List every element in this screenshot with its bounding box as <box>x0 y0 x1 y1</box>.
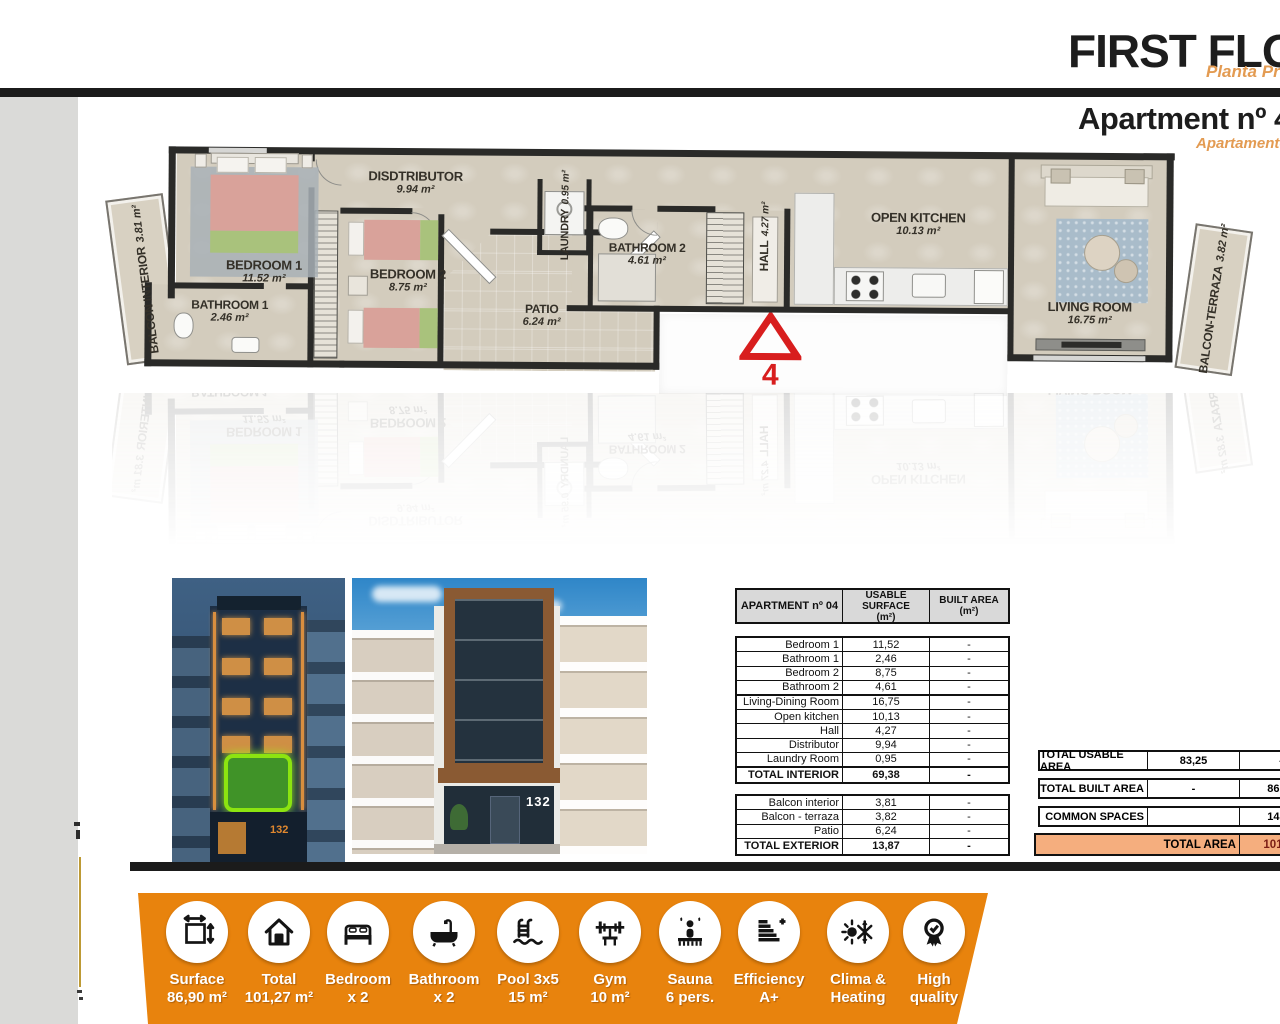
amenities-banner: Surface86,90 m² Total101,27 m² Bedroomx … <box>115 893 995 1024</box>
room-label-bathroom1: BATHROOM 12.46 m² <box>191 298 268 325</box>
table-row: Bathroom 12,46- <box>737 652 1008 666</box>
fridge <box>974 270 1004 304</box>
floor-plan: 4 <box>111 136 1263 398</box>
nightstand <box>302 154 313 168</box>
cloud <box>372 586 442 602</box>
bed-footer <box>419 308 437 348</box>
decor-mark <box>77 990 82 993</box>
window <box>1033 355 1145 361</box>
neighbor-building <box>172 636 210 862</box>
day-building-number: 132 <box>526 794 551 809</box>
lit-window <box>264 618 292 635</box>
light-strip <box>301 612 304 810</box>
pool-ladder-icon <box>497 901 559 963</box>
lit-window <box>264 658 292 675</box>
floor-plan-reflection: 4 <box>112 393 1262 561</box>
amenity-gym: Gym10 m² <box>566 901 654 1008</box>
header-divider-bar <box>0 88 1280 97</box>
room-label-open-kitchen: OPEN KITCHEN10.13 m² <box>871 210 966 238</box>
bed-footer <box>420 220 438 260</box>
plant <box>450 804 468 830</box>
amenity-bathroom: Bathroomx 2 <box>400 901 488 1008</box>
bed-icon <box>327 901 389 963</box>
balcony-slab <box>438 768 560 783</box>
amenity-quality: Highquality <box>890 901 978 1008</box>
lit-entrance <box>218 822 246 854</box>
table-row: Patio6,24- <box>737 825 1008 839</box>
wall <box>588 207 594 309</box>
table-row: Hall4,27- <box>737 724 1008 738</box>
entrance-door <box>490 796 520 844</box>
tv <box>1061 342 1121 348</box>
lit-window <box>222 618 250 635</box>
pillow <box>347 310 363 344</box>
amenity-surface: Surface86,90 m² <box>153 901 241 1008</box>
pouf <box>1114 259 1138 283</box>
amenity-bedroom: Bedroomx 2 <box>314 901 402 1008</box>
gym-icon <box>579 901 641 963</box>
wall <box>168 146 176 298</box>
surface-icon <box>166 901 228 963</box>
amenity-clima: Clima &Heating <box>814 901 902 1008</box>
table-row: Distributor9,94- <box>737 739 1008 753</box>
decor-mark <box>74 822 80 826</box>
table-row: Balcon interior3,81- <box>737 796 1008 810</box>
exterior-surfaces-table: Balcon interior3,81- Balcon - terraza3,8… <box>735 794 1010 856</box>
nightstand <box>348 276 368 296</box>
wood-frame <box>444 588 554 774</box>
wall <box>784 209 791 309</box>
wall <box>1165 153 1173 362</box>
building-photo-night: 132 <box>172 578 345 862</box>
bed-blanket <box>363 308 419 348</box>
unit-marker-triangle-icon <box>739 312 801 360</box>
table-row: Laundry Room0,95- <box>737 753 1008 767</box>
usable-surface-col-header: USABLE SURFACE(m²) <box>843 590 930 622</box>
table-row: Bedroom 111,52- <box>737 638 1008 652</box>
neighbor-building <box>560 616 647 854</box>
clima-heating-icon <box>827 901 889 963</box>
roof-detail <box>217 596 301 610</box>
sink <box>912 274 946 298</box>
pillow <box>348 222 364 256</box>
decor-mark <box>76 830 80 839</box>
stove <box>846 271 884 301</box>
sofa-pillow <box>1125 169 1145 184</box>
amenity-total: Total101,27 m² <box>235 901 323 1008</box>
amenity-efficiency: EfficiencyA+ <box>725 901 813 1008</box>
table-row: Living-Dining Room16,75- <box>737 696 1008 710</box>
pillow <box>217 157 249 173</box>
wall <box>339 361 659 370</box>
sink <box>231 337 259 353</box>
room-label-bathroom2: BATHROOM 24.61 m² <box>609 240 686 267</box>
kitchen-counter <box>794 193 835 305</box>
table-row: Balcon - terraza3,82- <box>737 810 1008 824</box>
highlighted-apartment <box>224 754 292 812</box>
room-label-bedroom1: BEDROOM 111.52 m² <box>226 257 302 285</box>
room-label-patio: PATIO6.24 m² <box>523 302 561 328</box>
total-area-row: TOTAL AREA 101,27 <box>1034 833 1280 856</box>
table-row: Bathroom 24,61- <box>737 681 1008 695</box>
night-building-number: 132 <box>270 824 288 836</box>
lit-window <box>222 698 250 715</box>
pillow <box>255 157 287 173</box>
wall <box>537 179 543 255</box>
unit-marker-number: 4 <box>755 358 785 392</box>
total-usable-area-row: TOTAL USABLE AREA83,25- <box>1038 750 1280 771</box>
pavement <box>434 844 560 854</box>
neighbor-building <box>352 630 434 854</box>
amenity-pool: Pool 3x515 m² <box>484 901 572 1008</box>
interior-surfaces-table: Bedroom 111,52- Bathroom 12,46- Bedroom … <box>735 636 1010 784</box>
building-photo-day: 132 <box>352 578 647 854</box>
amenity-sauna: Sauna6 pers. <box>646 901 734 1008</box>
bed-blanket <box>210 175 298 232</box>
apartment-title: Apartment nº 4 <box>1078 101 1280 137</box>
sofa-pillow <box>1051 169 1071 184</box>
light-strip <box>213 612 216 810</box>
room-label-hall: HALL 4.27 m² <box>755 202 773 272</box>
decor-mark <box>79 997 83 1000</box>
room-label-laundry: LAUNDRY 0.95 m² <box>555 170 574 260</box>
sauna-icon <box>659 901 721 963</box>
total-built-area-row: TOTAL BUILT AREA-86,90 <box>1038 778 1280 799</box>
lit-window <box>264 736 292 753</box>
page-subtitle: Planta Primera <box>1206 62 1280 82</box>
left-margin-panel <box>0 97 78 1024</box>
table-row: Bedroom 28,75- <box>737 667 1008 681</box>
bathtub-icon <box>413 901 475 963</box>
house-icon <box>248 901 310 963</box>
bed-blanket <box>364 220 420 260</box>
common-spaces-row: COMMON SPACES14,37 <box>1038 806 1280 827</box>
efficiency-icon <box>738 901 800 963</box>
table-row: Open kitchen10,13- <box>737 710 1008 724</box>
surface-table-header: APARTMENT nº 04 USABLE SURFACE(m²) BUILT… <box>735 588 1010 624</box>
wall <box>653 306 659 370</box>
section-divider-bar <box>130 862 1280 871</box>
neighbor-building <box>307 620 345 862</box>
room-label-disdtributor: DISDTRIBUTOR9.94 m² <box>368 168 463 196</box>
brochure-page: { "header": { "title": "FIRST FLOOR", "s… <box>0 0 1280 1024</box>
surface-table-title: APARTMENT nº 04 <box>737 590 843 622</box>
stairwell-void <box>659 314 1008 396</box>
lit-window <box>222 658 250 675</box>
wardrobe <box>706 212 745 304</box>
room-label-living-room: LIVING ROOM16.75 m² <box>1048 299 1132 327</box>
quality-badge-icon <box>903 901 965 963</box>
gold-rule <box>79 857 81 987</box>
room-label-bedroom2: BEDROOM 28.75 m² <box>370 266 446 294</box>
table-row-total-interior: TOTAL INTERIOR69,38- <box>737 768 1008 782</box>
bed-footer <box>210 231 298 254</box>
table-row-total-exterior: TOTAL EXTERIOR13,87- <box>737 839 1008 853</box>
wall <box>340 208 412 215</box>
nightstand <box>195 154 207 168</box>
built-area-col-header: BUILT AREA(m²) <box>930 590 1008 622</box>
lit-window <box>222 736 250 753</box>
lit-window <box>264 698 292 715</box>
toilet <box>598 217 628 239</box>
wall <box>144 359 344 367</box>
